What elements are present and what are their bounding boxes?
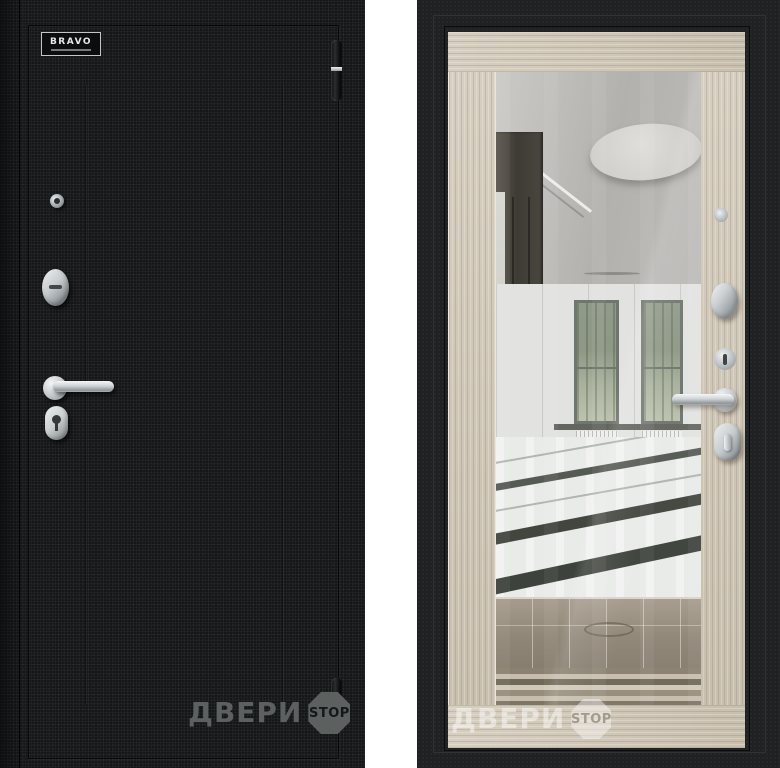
door-product-image: BRAVO ДВЕРИ STOP <box>0 0 780 768</box>
wood-trim-top <box>448 32 745 72</box>
watermark-text: ДВЕРИ <box>451 705 565 733</box>
panel-groove-left <box>85 85 87 705</box>
lock-cylinder-slot <box>49 285 62 289</box>
keyhole-escutcheon <box>45 406 68 440</box>
peephole-icon <box>50 194 64 208</box>
thumbturn-escutcheon <box>714 423 741 461</box>
panel-groove-frame <box>28 25 339 759</box>
lock-cylinder-cover-interior <box>711 283 738 319</box>
reflection-window-right <box>641 300 683 424</box>
reflection-pendant-lamp <box>584 272 640 275</box>
door-hinge-top <box>331 40 342 101</box>
door-left-edge <box>0 0 20 768</box>
panel-groove-right <box>282 85 284 705</box>
watermark-right: ДВЕРИ STOP <box>451 699 611 739</box>
floor-drain-ring <box>584 622 634 637</box>
door-exterior-panel: BRAVO ДВЕРИ STOP <box>0 0 365 768</box>
reflection-marble-floor <box>496 437 701 597</box>
wood-trim-left <box>448 72 496 705</box>
peephole-cover-interior <box>714 208 728 222</box>
stop-badge-text: STOP <box>571 712 612 727</box>
keyhole-icon <box>723 354 727 365</box>
hinge-band <box>331 67 342 71</box>
window-transom <box>644 367 680 369</box>
stop-badge-text: STOP <box>309 706 350 721</box>
lock-cylinder-interior <box>714 348 736 370</box>
lock-cylinder-cover <box>42 269 69 306</box>
thumbturn-knob <box>724 434 731 451</box>
stop-badge-icon: STOP <box>571 699 611 739</box>
reflection-window-left <box>574 300 619 424</box>
mirror-panel <box>495 72 701 705</box>
brand-logo-subline <box>51 49 91 51</box>
stop-badge-icon: STOP <box>308 692 350 734</box>
watermark-left: ДВЕРИ STOP <box>188 692 350 734</box>
window-transom <box>577 367 616 369</box>
lever-handle-exterior <box>53 381 114 392</box>
watermark-text: ДВЕРИ <box>188 699 302 727</box>
peephole-lens <box>54 198 60 204</box>
reflection-window-sill <box>554 424 701 430</box>
brand-logo: BRAVO <box>41 32 101 56</box>
brand-logo-text: BRAVO <box>50 38 92 47</box>
keyhole-stem <box>55 421 58 431</box>
lever-handle-interior <box>672 394 734 405</box>
door-interior-panel: ДВЕРИ STOP <box>417 0 780 768</box>
